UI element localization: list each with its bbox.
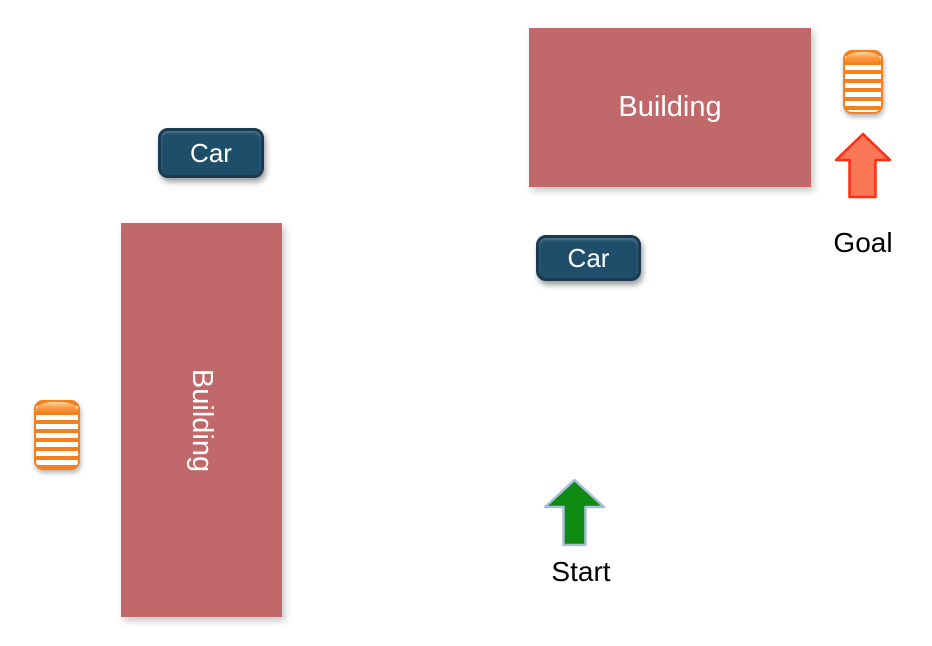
goal-up-arrow-icon bbox=[834, 132, 892, 199]
car-middle: Car bbox=[536, 235, 641, 281]
goal-label: Goal bbox=[820, 227, 906, 259]
start-up-arrow-icon bbox=[543, 478, 606, 547]
diagram-canvas: Building Goal Car Building Car Start bbox=[0, 0, 932, 646]
goal-cylinder-icon bbox=[843, 50, 883, 114]
car-top-label: Car bbox=[190, 138, 232, 169]
start-label: Start bbox=[538, 556, 624, 588]
building-left-label: Building bbox=[185, 368, 218, 471]
building-top: Building bbox=[529, 28, 811, 187]
car-middle-label: Car bbox=[568, 243, 610, 274]
building-top-label: Building bbox=[618, 91, 721, 124]
left-cylinder-icon bbox=[34, 400, 80, 470]
car-top: Car bbox=[158, 128, 264, 178]
building-left: Building bbox=[121, 223, 282, 617]
